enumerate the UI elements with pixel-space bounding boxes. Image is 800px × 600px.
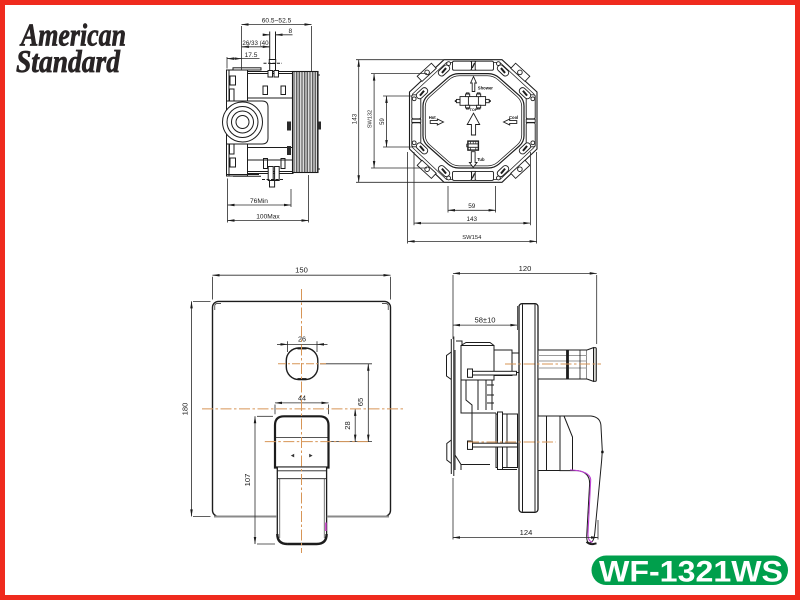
svg-text:180: 180	[180, 403, 189, 416]
svg-text:8: 8	[289, 28, 293, 35]
svg-text:60.5~52.5: 60.5~52.5	[262, 18, 292, 25]
svg-text:17.5: 17.5	[245, 52, 258, 59]
svg-text:Tub: Tub	[477, 157, 485, 162]
svg-text:58±10: 58±10	[474, 316, 495, 325]
svg-text:59: 59	[468, 203, 476, 210]
svg-text:107: 107	[243, 474, 252, 487]
svg-text:26/33 (40: 26/33 (40	[242, 40, 269, 47]
svg-text:SW154: SW154	[462, 235, 482, 241]
svg-text:143: 143	[351, 113, 358, 124]
svg-text:SW132: SW132	[368, 110, 374, 128]
svg-text:TOP: TOP	[470, 108, 478, 112]
svg-text:124: 124	[520, 528, 533, 537]
svg-text:100Max: 100Max	[256, 214, 280, 221]
svg-text:28: 28	[343, 421, 352, 429]
svg-text:65: 65	[356, 398, 365, 406]
svg-text:76Min: 76Min	[250, 198, 268, 205]
svg-text:120: 120	[519, 264, 532, 273]
svg-text:WF-1321WS: WF-1321WS	[599, 556, 783, 589]
svg-text:Standard: Standard	[16, 43, 121, 79]
svg-text:Shower: Shower	[478, 85, 493, 90]
svg-text:Cool: Cool	[509, 115, 518, 120]
svg-text:150: 150	[295, 266, 308, 275]
svg-text:Hot: Hot	[429, 115, 437, 120]
svg-text:59: 59	[380, 118, 386, 125]
svg-text:143: 143	[466, 216, 477, 223]
